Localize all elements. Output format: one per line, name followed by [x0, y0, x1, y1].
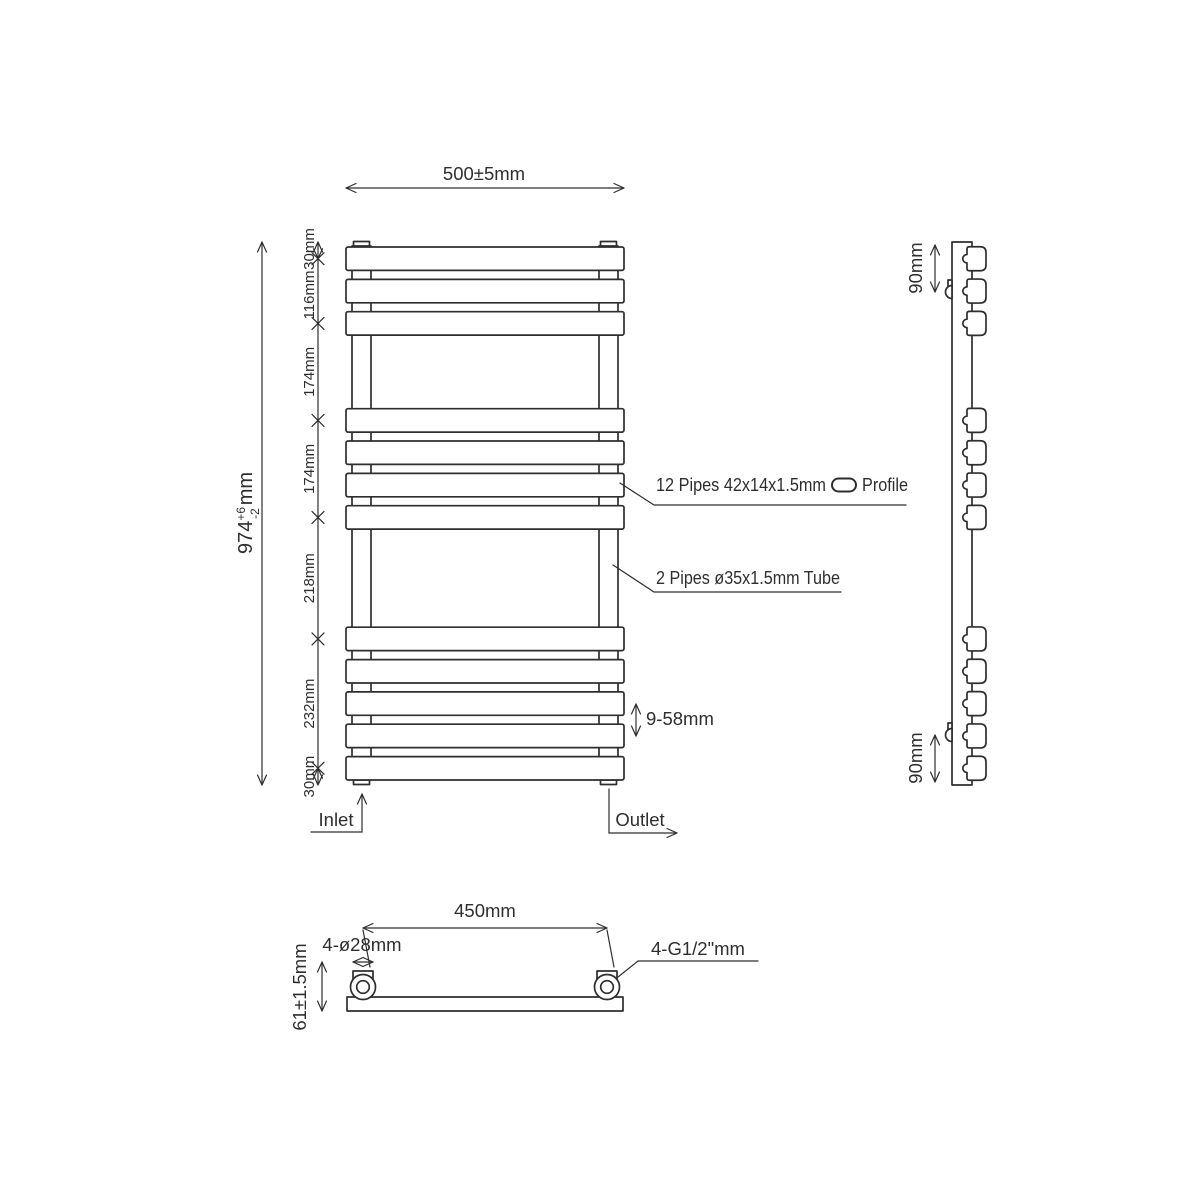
chain-dim-218: 218mm	[301, 553, 318, 603]
thread-dim-label: 4-G1/2"mm	[651, 938, 745, 959]
pipe-bar	[346, 627, 624, 650]
pipe-bar	[346, 473, 624, 496]
pipe-bar	[346, 247, 624, 270]
inlet-label: Inlet	[319, 809, 354, 830]
width-dim-label: 500±5mm	[443, 163, 525, 184]
pipe-end-tab	[963, 692, 986, 716]
chain-dim-174-b: 174mm	[301, 444, 318, 494]
pipe-bar	[346, 692, 624, 715]
pipe-bar	[346, 409, 624, 432]
fitting-left-inner-circle	[357, 981, 370, 994]
pipe-bar	[346, 757, 624, 780]
fitting-left	[351, 971, 376, 1000]
pipe-bar	[346, 660, 624, 683]
centers-dim-label: 450mm	[454, 900, 516, 921]
wall-bracket-knob	[946, 729, 952, 742]
bracket-bottom-dim-label: 90mm	[905, 732, 926, 783]
pipe-pitch-label: 9-58mm	[646, 708, 714, 729]
tube-spec-label: 2 Pipes ø35x1.5mm Tube	[656, 567, 840, 588]
bracket-top-dim-label: 90mm	[905, 242, 926, 293]
pipe-end-tab	[963, 473, 986, 497]
pipe-end-tab	[963, 279, 986, 303]
wall-bracket-knob	[946, 286, 952, 299]
radiator-technical-drawing: 500±5mm 974+6-2mm 30mm 116mm 174mm 174mm…	[0, 0, 1200, 1200]
pipe-end-tab	[963, 756, 986, 780]
pipes-spec-label-suffix: Profile	[862, 474, 908, 495]
pipe-bar	[346, 312, 624, 335]
side-pipe-ends	[963, 247, 986, 781]
pipe-bar	[346, 441, 624, 464]
pipe-bar	[346, 506, 624, 529]
outlet-label: Outlet	[615, 809, 664, 830]
bottom-panel-bar	[347, 997, 623, 1011]
fitting-right	[595, 971, 620, 1000]
pipe-end-tab	[963, 247, 986, 271]
pipe-end-tab	[963, 311, 986, 335]
pipe-bar	[346, 279, 624, 302]
chain-dim-30-bottom: 30mm	[301, 756, 318, 798]
radiator-technical-drawing-page: 500±5mm 974+6-2mm 30mm 116mm 174mm 174mm…	[0, 0, 1200, 1200]
pipe-end-tab	[963, 441, 986, 465]
pipe-bar	[346, 724, 624, 747]
pipe-end-tab	[963, 505, 986, 529]
pipe-end-tab	[963, 659, 986, 683]
pipe-end-tab	[963, 724, 986, 748]
chain-dim-116: 116mm	[301, 271, 318, 320]
front-pipes	[346, 247, 624, 780]
flat-pipe-profile-icon	[832, 479, 856, 492]
hole-dim-label: 4-ø28mm	[322, 934, 401, 955]
pipe-end-tab	[963, 627, 986, 651]
depth-dim-label: 61±1.5mm	[289, 943, 310, 1030]
chain-dim-232: 232mm	[301, 679, 318, 729]
pipe-end-tab	[963, 408, 986, 432]
chain-dim-174-a: 174mm	[301, 347, 318, 397]
pipes-spec-label: 12 Pipes 42x14x1.5mm	[656, 474, 826, 495]
fitting-right-inner-circle	[601, 981, 614, 994]
